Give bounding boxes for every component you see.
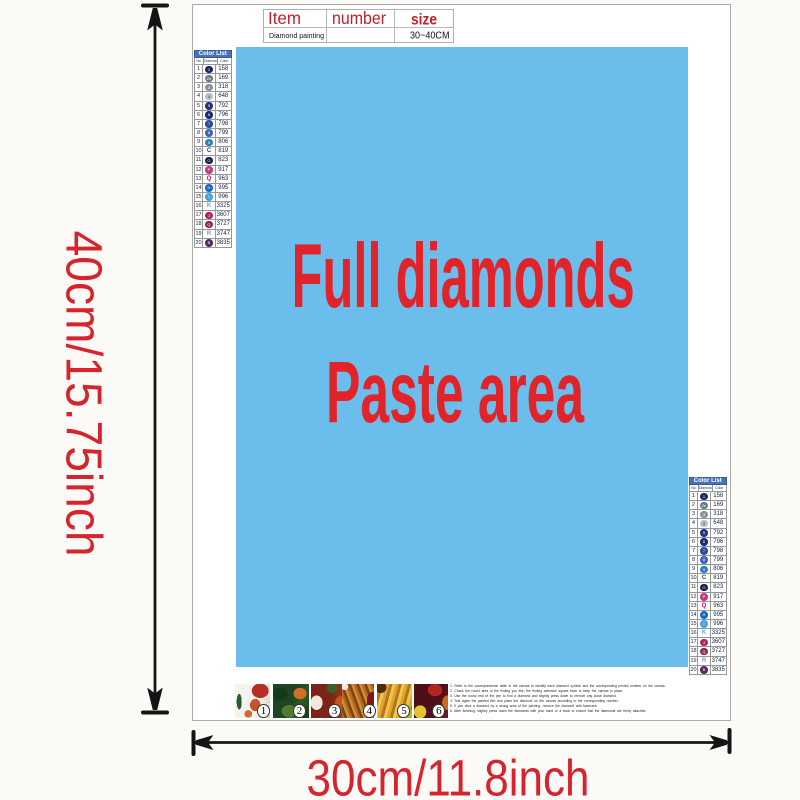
- svg-text:size: size: [411, 12, 437, 29]
- svg-text:Full diamonds: Full diamonds: [292, 226, 635, 327]
- svg-text:30cm/11.8inch: 30cm/11.8inch: [307, 750, 590, 800]
- svg-text:30~40CM: 30~40CM: [410, 30, 450, 42]
- svg-text:Diamond painting: Diamond painting: [269, 31, 324, 40]
- svg-text:number: number: [332, 8, 386, 28]
- svg-text:Paste area: Paste area: [326, 344, 584, 441]
- svg-text:Item: Item: [268, 8, 301, 28]
- svg-text:40cm/15.75inch: 40cm/15.75inch: [56, 231, 113, 557]
